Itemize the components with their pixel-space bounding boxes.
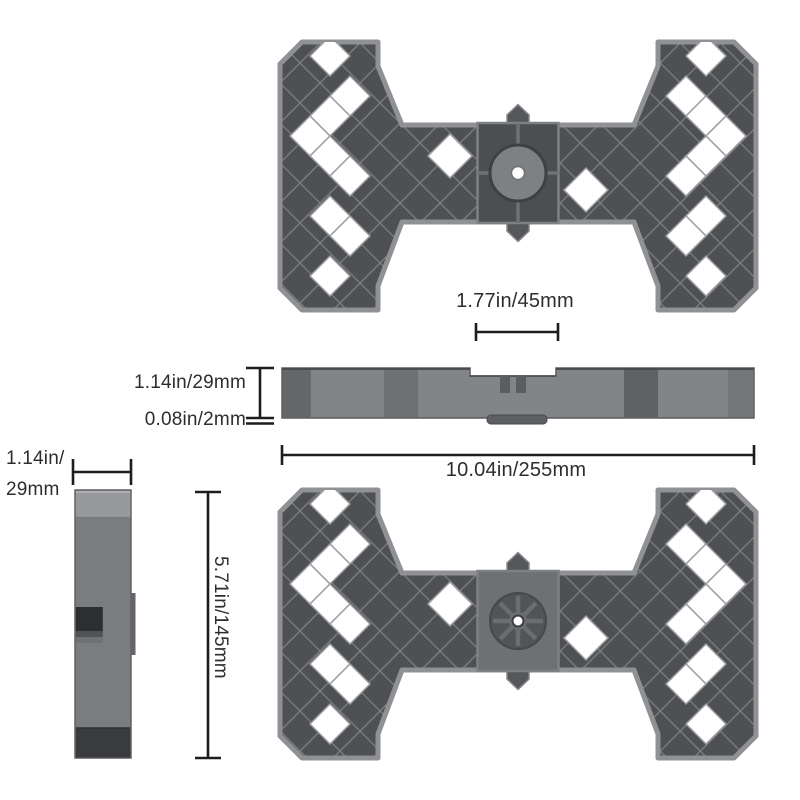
dimension-label-base-thickness: 0.08in/2mm: [100, 407, 246, 433]
hub-tab-top: [507, 553, 529, 573]
bracket-bottom-view: [277, 487, 759, 765]
dimension-label-hub-width: 1.77in/45mm: [420, 288, 610, 314]
dimension-line-hub-width: [474, 321, 560, 343]
end-side-tab: [131, 593, 136, 655]
bracket-end-view: [72, 488, 138, 762]
end-top-face: [76, 491, 131, 517]
dimension-label-side-height: 1.14in/29mm: [100, 370, 246, 396]
hub-hole: [512, 167, 525, 180]
center-hub-bottom: [478, 553, 559, 690]
center-hub-top: [478, 105, 559, 242]
product-dimension-diagram: 1.77in/45mm 1.14in/29mm 0.08in/2mm 10.04…: [0, 0, 800, 800]
dimension-label-end-width-line2: 29mm: [6, 477, 76, 503]
hub-tab-bottom: [507, 670, 529, 690]
dimension-label-total-length: 10.04in/255mm: [366, 457, 666, 483]
hub-tab-top: [507, 105, 529, 125]
dimension-line-side-height: [243, 364, 277, 428]
end-slot: [76, 607, 103, 643]
dimension-label-end-width-line1: 1.14in/: [6, 446, 76, 472]
hub-tab-bottom: [507, 222, 529, 242]
dimension-line-end-width: [70, 456, 134, 488]
side-bottom-disc: [487, 415, 547, 424]
dimension-label-plate-depth: 5.71in/145mm: [207, 556, 233, 706]
bracket-side-view: [280, 362, 756, 428]
bracket-top-view: [277, 39, 759, 317]
hub-hole: [513, 616, 524, 627]
end-bottom-face: [76, 728, 131, 758]
